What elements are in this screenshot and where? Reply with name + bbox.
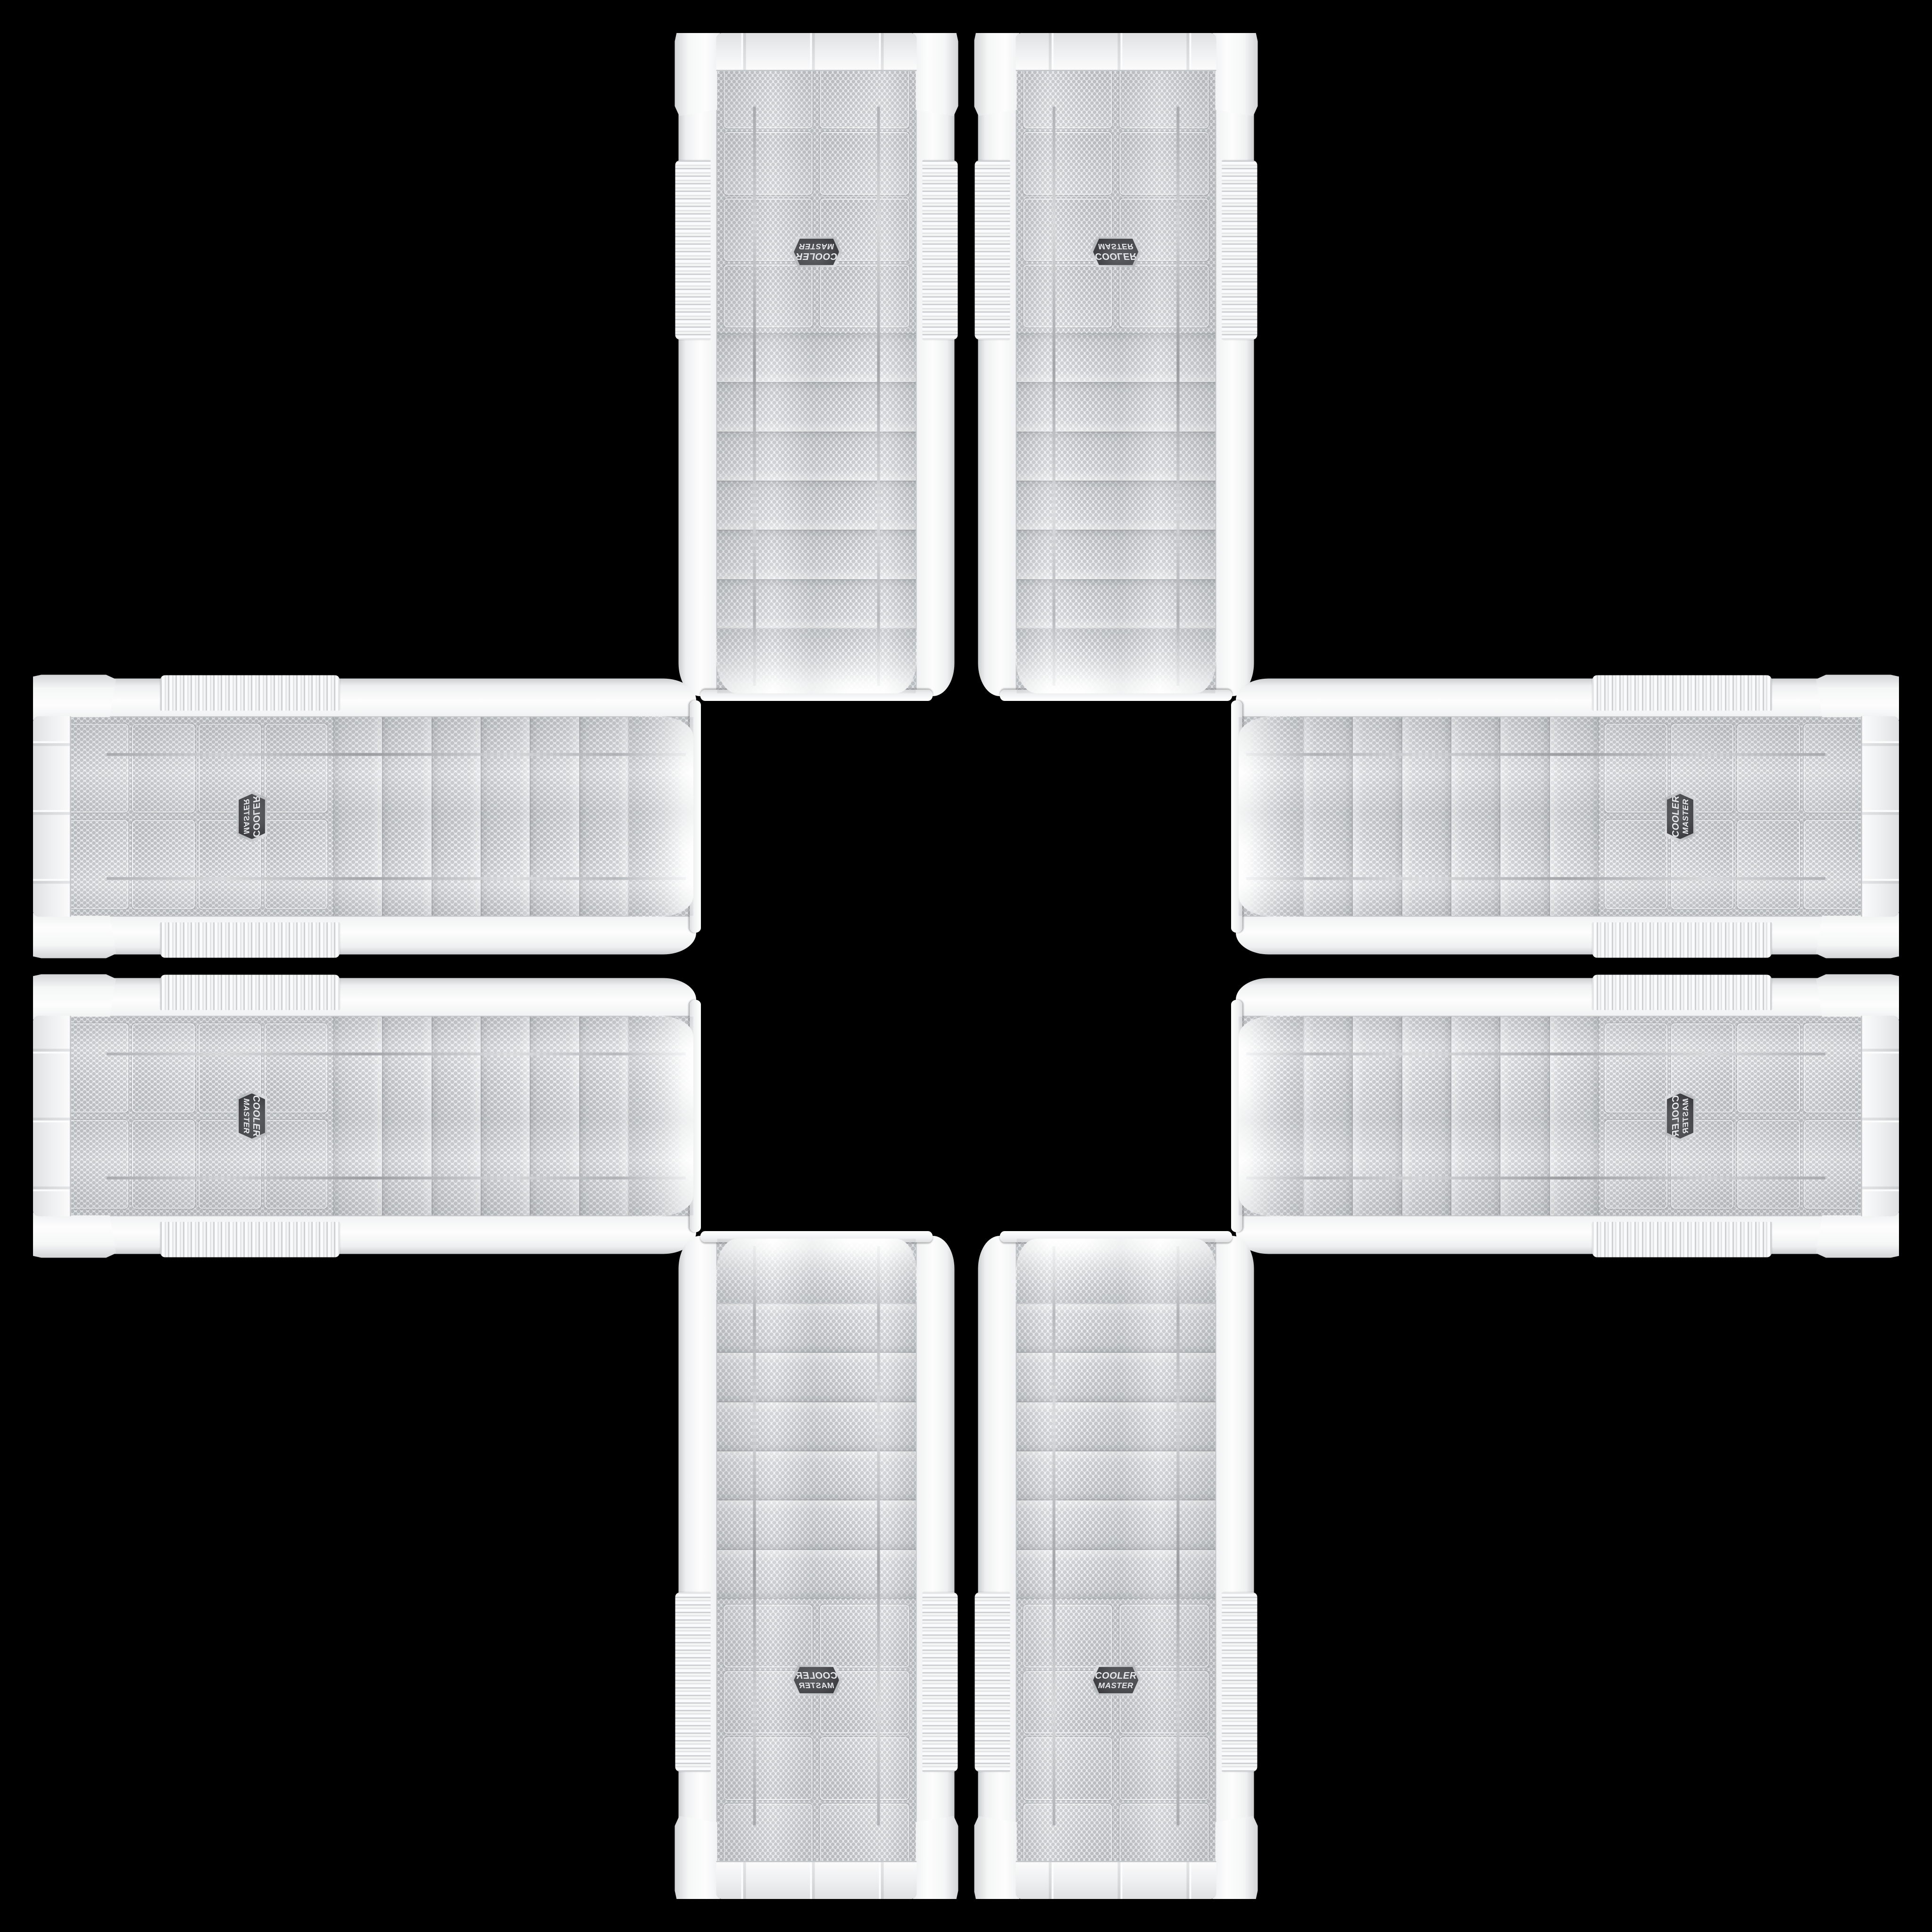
case-side-rail-right: [1215, 33, 1254, 696]
chrome-trim-left: [1052, 1246, 1055, 1825]
rail-foot: [33, 675, 116, 720]
case-slot-top-left: COOLER MASTER: [678, 33, 954, 703]
badge-text-line1: COOLER: [1671, 795, 1681, 837]
mesh-strip-cover: [717, 1499, 916, 1549]
case-side-rail-right: [1236, 678, 1899, 717]
drive-bay-cover: [133, 1120, 195, 1209]
drive-bay-cover: [820, 66, 909, 129]
rail-foot: [33, 1212, 116, 1257]
rail-grip-ribs: [1592, 1222, 1772, 1257]
cooler-master-badge: COOLER MASTER: [1091, 233, 1141, 270]
badge-text-line2: MASTER: [1682, 1098, 1690, 1133]
badge-text-line1: COOLER: [252, 795, 261, 837]
front-mesh-panel: COOLER MASTER: [1239, 1016, 1863, 1215]
mesh-strip-cover: [1016, 433, 1215, 482]
mesh-dome-top: [1016, 627, 1216, 693]
mesh-strip-cover: [1450, 1016, 1499, 1215]
chrome-trim-right: [753, 1246, 756, 1825]
mesh-strips: [1304, 717, 1598, 916]
drive-bay-cover: [1023, 1605, 1112, 1667]
badge-face: COOLER MASTER: [1093, 236, 1139, 268]
mesh-strip-cover: [383, 1016, 432, 1215]
mesh-strip-cover: [531, 717, 580, 916]
rail-foot: [974, 33, 1019, 116]
kaleidoscope-canvas: COOLER MASTER COOLER MASTER: [0, 0, 1932, 1932]
badge-face: COOLER MASTER: [794, 236, 839, 268]
mesh-strip-cover: [1401, 1016, 1450, 1215]
drive-bay-cover: [1804, 1023, 1866, 1112]
case-slot-top-right: COOLER MASTER: [978, 33, 1254, 703]
mesh-strip-cover: [1304, 1016, 1352, 1215]
case-side-rail-right: [678, 1236, 717, 1899]
mesh-strips: [1304, 1016, 1598, 1215]
drive-bay-cover: [1737, 1120, 1800, 1209]
cooler-master-badge: COOLER MASTER: [791, 1662, 842, 1699]
badge-text-line2: MASTER: [799, 1682, 834, 1690]
drive-bay-cover: [265, 724, 328, 813]
drive-bay-cover: [66, 820, 129, 909]
pc-case-bottom-left: COOLER MASTER: [678, 1229, 954, 1899]
drive-bay-cover: [820, 1804, 909, 1866]
bottom-band: [1016, 33, 1216, 71]
badge-text-line2: MASTER: [243, 799, 251, 834]
rail-foot: [1816, 675, 1899, 720]
bottom-band: [33, 716, 71, 916]
drive-bay-cover: [1023, 265, 1112, 328]
cooler-master-badge: COOLER MASTER: [1662, 791, 1699, 842]
drive-bay-cover: [1023, 1804, 1112, 1866]
mesh-dome-top: [1016, 1239, 1216, 1305]
mesh-strip-cover: [383, 717, 432, 916]
cooler-master-badge: COOLER MASTER: [1091, 1662, 1141, 1699]
drive-bay-cover: [1605, 820, 1667, 909]
drive-bay-cover: [1737, 820, 1800, 909]
case-side-rail-right: [678, 33, 717, 696]
badge-face: COOLER MASTER: [1664, 794, 1696, 839]
mesh-strip-cover: [1016, 383, 1215, 432]
chrome-trim-left: [107, 877, 686, 880]
chrome-trim-right: [1176, 1246, 1179, 1825]
pc-case-left-top: COOLER MASTER: [33, 678, 703, 954]
drive-bay-cover: [724, 66, 813, 129]
case-side-rail-right: [1236, 1215, 1899, 1254]
mesh-strip-cover: [1016, 1352, 1215, 1401]
case-side-rail-left: [1236, 978, 1899, 1016]
drive-bay-cover: [1804, 820, 1866, 909]
rail-foot: [33, 913, 116, 958]
badge-face: COOLER MASTER: [1093, 1664, 1139, 1696]
drive-bay-cover: [1120, 265, 1209, 328]
drive-bay-grid: [1016, 60, 1215, 334]
drive-bay-cover: [1023, 66, 1112, 129]
rail-grip-ribs: [160, 675, 340, 710]
mesh-strip-cover: [1016, 482, 1215, 531]
rail-grip-ribs: [160, 1222, 340, 1257]
drive-bay-grid: [717, 1598, 916, 1872]
mesh-strip-cover: [717, 1401, 916, 1450]
pc-case-top-right: COOLER MASTER: [978, 33, 1254, 703]
badge-text-line1: COOLER: [252, 1095, 261, 1137]
bottom-band: [1016, 1861, 1216, 1899]
rail-foot: [1212, 33, 1257, 116]
badge-text-line1: COOLER: [1671, 1095, 1681, 1137]
case-slot-bottom-right: COOLER MASTER: [978, 1229, 1254, 1899]
mesh-strip-cover: [1352, 1016, 1401, 1215]
mesh-strip-cover: [1549, 1016, 1598, 1215]
mesh-strips: [1016, 1304, 1215, 1598]
rail-grip-ribs: [1592, 922, 1772, 958]
mesh-strip-cover: [433, 717, 482, 916]
mesh-dome-top: [716, 627, 916, 693]
mesh-strip-cover: [717, 1352, 916, 1401]
front-mesh-panel: COOLER MASTER: [1016, 69, 1215, 693]
rail-grip-ribs: [922, 160, 958, 340]
mesh-strip-cover: [1304, 717, 1352, 916]
front-mesh-panel: COOLER MASTER: [717, 1239, 916, 1863]
mesh-strip-cover: [334, 717, 383, 916]
case-side-rail-right: [1215, 1236, 1254, 1899]
rail-foot: [33, 974, 116, 1019]
mesh-strip-cover: [1450, 717, 1499, 916]
drive-bay-cover: [724, 1737, 813, 1800]
drive-bay-cover: [1804, 724, 1866, 813]
drive-bay-cover: [1023, 133, 1112, 195]
drive-bay-cover: [133, 820, 195, 909]
cooler-master-badge: COOLER MASTER: [791, 233, 842, 270]
drive-bay-cover: [820, 133, 909, 195]
case-side-rail-left: [916, 1236, 954, 1899]
mesh-strip-cover: [580, 1016, 628, 1215]
badge-face: COOLER MASTER: [236, 1093, 268, 1139]
mesh-strip-cover: [717, 1450, 916, 1499]
drive-bay-cover: [820, 1605, 909, 1667]
badge-face: COOLER MASTER: [236, 794, 268, 839]
case-side-rail-left: [1236, 916, 1899, 954]
mesh-strip-cover: [580, 717, 628, 916]
cooler-master-badge: COOLER MASTER: [233, 791, 270, 842]
case-side-rail-left: [978, 33, 1016, 696]
badge-text-line1: COOLER: [795, 252, 837, 261]
mesh-strip-cover: [482, 1016, 531, 1215]
rail-grip-ribs: [675, 1592, 710, 1772]
drive-bay-cover: [66, 1120, 129, 1209]
drive-bay-cover: [724, 1605, 813, 1667]
mesh-strips: [334, 717, 628, 916]
rail-grip-ribs: [922, 1592, 958, 1772]
badge-text-line1: COOLER: [1095, 252, 1137, 261]
mesh-strip-cover: [717, 580, 916, 628]
mesh-strip-cover: [1016, 1401, 1215, 1450]
rail-foot: [675, 1816, 720, 1899]
case-side-rail-left: [33, 978, 696, 1016]
drive-bay-grid: [1016, 1598, 1215, 1872]
drive-bay-cover: [1804, 1120, 1866, 1209]
mesh-dome-top: [716, 1239, 916, 1305]
mesh-strips: [717, 334, 916, 628]
chrome-trim-left: [107, 1052, 686, 1055]
mesh-strip-cover: [717, 334, 916, 383]
mesh-strip-cover: [482, 717, 531, 916]
pc-case-left-bottom: COOLER MASTER: [33, 978, 703, 1254]
mesh-strip-cover: [1499, 1016, 1549, 1215]
front-mesh-panel: COOLER MASTER: [1239, 717, 1863, 916]
badge-text-line1: COOLER: [795, 1671, 837, 1681]
drive-bay-cover: [1120, 133, 1209, 195]
chrome-trim-left: [1246, 877, 1825, 880]
chrome-trim-left: [877, 1246, 880, 1825]
drive-bay-cover: [1120, 1737, 1209, 1800]
mesh-dome-top: [1239, 716, 1305, 916]
case-side-rail-right: [33, 1215, 696, 1254]
rail-foot: [1816, 974, 1899, 1019]
rail-grip-ribs: [1222, 1592, 1257, 1772]
drive-bay-cover: [66, 724, 129, 813]
drive-bay-grid: [1598, 1016, 1872, 1215]
drive-bay-cover: [133, 724, 195, 813]
chrome-trim-left: [1246, 1052, 1825, 1055]
case-slot-left-bottom: COOLER MASTER: [33, 978, 703, 1254]
mesh-strips: [1016, 334, 1215, 628]
mesh-strip-cover: [1016, 531, 1215, 580]
chrome-trim-right: [1246, 1176, 1825, 1179]
mesh-strip-cover: [717, 383, 916, 432]
chrome-trim-right: [107, 753, 686, 756]
drive-bay-cover: [1120, 1804, 1209, 1866]
badge-text-line2: MASTER: [799, 243, 834, 251]
drive-bay-cover: [1605, 1120, 1667, 1209]
drive-bay-cover: [1737, 724, 1800, 813]
front-mesh-panel: COOLER MASTER: [717, 69, 916, 693]
front-mesh-panel: COOLER MASTER: [69, 717, 693, 916]
mesh-dome-top: [627, 1016, 693, 1216]
badge-text-line1: COOLER: [1095, 1671, 1137, 1681]
case-slot-right-bottom: COOLER MASTER: [1229, 978, 1899, 1254]
bottom-band: [716, 33, 916, 71]
chrome-trim-right: [107, 1176, 686, 1179]
mesh-strip-cover: [717, 1304, 916, 1352]
mesh-dome-top: [627, 716, 693, 916]
case-side-rail-left: [978, 1236, 1016, 1899]
chrome-trim-left: [1052, 107, 1055, 686]
mesh-strip-cover: [1549, 717, 1598, 916]
drive-bay-cover: [1737, 1023, 1800, 1112]
mesh-strip-cover: [717, 531, 916, 580]
rail-foot: [913, 1816, 958, 1899]
rail-foot: [974, 1816, 1019, 1899]
drive-bay-cover: [724, 1804, 813, 1866]
badge-text-line2: MASTER: [1098, 243, 1133, 251]
bottom-band: [716, 1861, 916, 1899]
bottom-band: [1861, 1016, 1899, 1216]
drive-bay-cover: [1605, 724, 1667, 813]
pc-case-bottom-right: COOLER MASTER: [978, 1229, 1254, 1899]
rail-foot: [675, 33, 720, 116]
mesh-strip-cover: [717, 482, 916, 531]
bottom-band: [1861, 716, 1899, 916]
badge-text-line2: MASTER: [1682, 799, 1690, 834]
mesh-strip-cover: [1016, 1549, 1215, 1598]
mesh-dome-top: [1239, 1016, 1305, 1216]
mesh-strip-cover: [1016, 580, 1215, 628]
rail-grip-ribs: [1592, 974, 1772, 1010]
mesh-strip-cover: [1016, 334, 1215, 383]
mesh-strip-cover: [433, 1016, 482, 1215]
mesh-strip-cover: [334, 1016, 383, 1215]
drive-bay-grid: [1598, 717, 1872, 916]
chrome-trim-right: [1246, 753, 1825, 756]
drive-bay-cover: [1023, 1737, 1112, 1800]
cooler-master-badge: COOLER MASTER: [1662, 1091, 1699, 1141]
mesh-strips: [717, 1304, 916, 1598]
chrome-trim-left: [877, 107, 880, 686]
case-slot-right-top: COOLER MASTER: [1229, 678, 1899, 954]
chrome-trim-right: [753, 107, 756, 686]
badge-text-line2: MASTER: [243, 1098, 251, 1133]
rail-foot: [913, 33, 958, 116]
drive-bay-cover: [265, 1120, 328, 1209]
rail-grip-ribs: [160, 922, 340, 958]
pc-case-right-bottom: COOLER MASTER: [1229, 978, 1899, 1254]
drive-bay-grid: [60, 1016, 334, 1215]
mesh-strip-cover: [1016, 1499, 1215, 1549]
rail-foot: [1816, 913, 1899, 958]
rail-grip-ribs: [675, 160, 710, 340]
front-mesh-panel: COOLER MASTER: [1016, 1239, 1215, 1863]
case-slot-left-top: COOLER MASTER: [33, 678, 703, 954]
mesh-strip-cover: [531, 1016, 580, 1215]
rail-grip-ribs: [1222, 160, 1257, 340]
drive-bay-cover: [1120, 1605, 1209, 1667]
mesh-strip-cover: [1401, 717, 1450, 916]
case-side-rail-right: [33, 678, 696, 717]
case-side-rail-left: [33, 916, 696, 954]
drive-bay-cover: [724, 265, 813, 328]
bottom-band: [33, 1016, 71, 1216]
rail-foot: [1212, 1816, 1257, 1899]
drive-bay-grid: [60, 717, 334, 916]
drive-bay-grid: [717, 60, 916, 334]
badge-face: COOLER MASTER: [794, 1664, 839, 1696]
rail-foot: [1816, 1212, 1899, 1257]
drive-bay-cover: [820, 265, 909, 328]
case-side-rail-left: [916, 33, 954, 696]
rail-grip-ribs: [974, 1592, 1010, 1772]
mesh-strips: [334, 1016, 628, 1215]
cooler-master-badge: COOLER MASTER: [233, 1091, 270, 1141]
rail-grip-ribs: [1592, 675, 1772, 710]
mesh-strip-cover: [1499, 717, 1549, 916]
drive-bay-cover: [820, 1737, 909, 1800]
front-mesh-panel: COOLER MASTER: [69, 1016, 693, 1215]
rail-grip-ribs: [160, 974, 340, 1010]
drive-bay-cover: [724, 133, 813, 195]
rail-grip-ribs: [974, 160, 1010, 340]
badge-face: COOLER MASTER: [1664, 1093, 1696, 1139]
drive-bay-cover: [66, 1023, 129, 1112]
mesh-strip-cover: [717, 433, 916, 482]
pc-case-top-left: COOLER MASTER: [678, 33, 954, 703]
drive-bay-cover: [265, 820, 328, 909]
badge-text-line2: MASTER: [1098, 1682, 1133, 1690]
mesh-strip-cover: [717, 1549, 916, 1598]
drive-bay-cover: [133, 1023, 195, 1112]
drive-bay-cover: [1120, 66, 1209, 129]
mesh-strip-cover: [1016, 1450, 1215, 1499]
mesh-strip-cover: [1016, 1304, 1215, 1352]
mesh-strip-cover: [1352, 717, 1401, 916]
chrome-trim-right: [1176, 107, 1179, 686]
drive-bay-cover: [265, 1023, 328, 1112]
case-slot-bottom-left: COOLER MASTER: [678, 1229, 954, 1899]
drive-bay-cover: [1605, 1023, 1667, 1112]
pc-case-right-top: COOLER MASTER: [1229, 678, 1899, 954]
